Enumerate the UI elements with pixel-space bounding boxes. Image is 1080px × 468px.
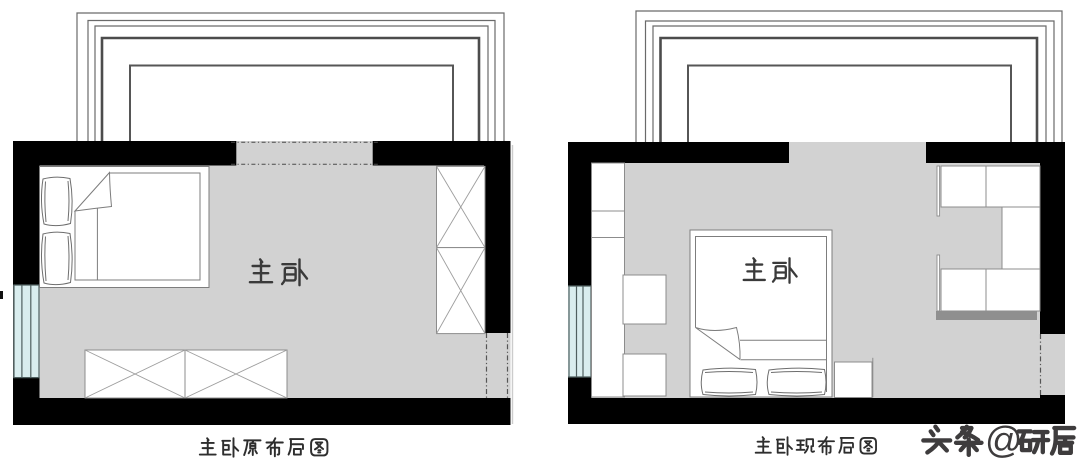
svg-text:@: @ <box>985 420 1023 461</box>
